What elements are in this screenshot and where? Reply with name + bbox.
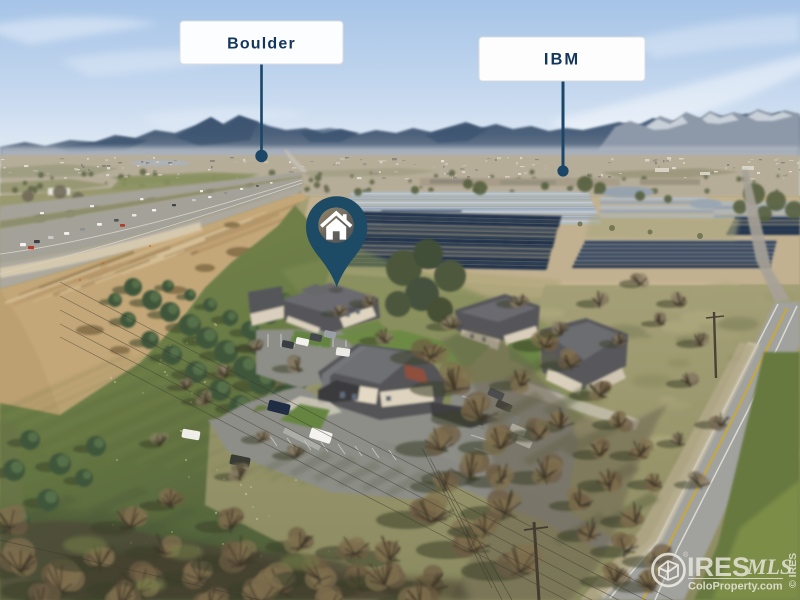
svg-text:Boulder: Boulder bbox=[227, 36, 296, 53]
svg-text:®: ® bbox=[683, 551, 689, 559]
svg-text:IBM: IBM bbox=[544, 51, 580, 69]
svg-text:ColoProperty.com: ColoProperty.com bbox=[688, 581, 783, 593]
svg-text:IRES: IRES bbox=[687, 552, 750, 582]
svg-text:MLS: MLS bbox=[746, 554, 792, 579]
svg-text:© IRES: © IRES bbox=[787, 553, 799, 588]
